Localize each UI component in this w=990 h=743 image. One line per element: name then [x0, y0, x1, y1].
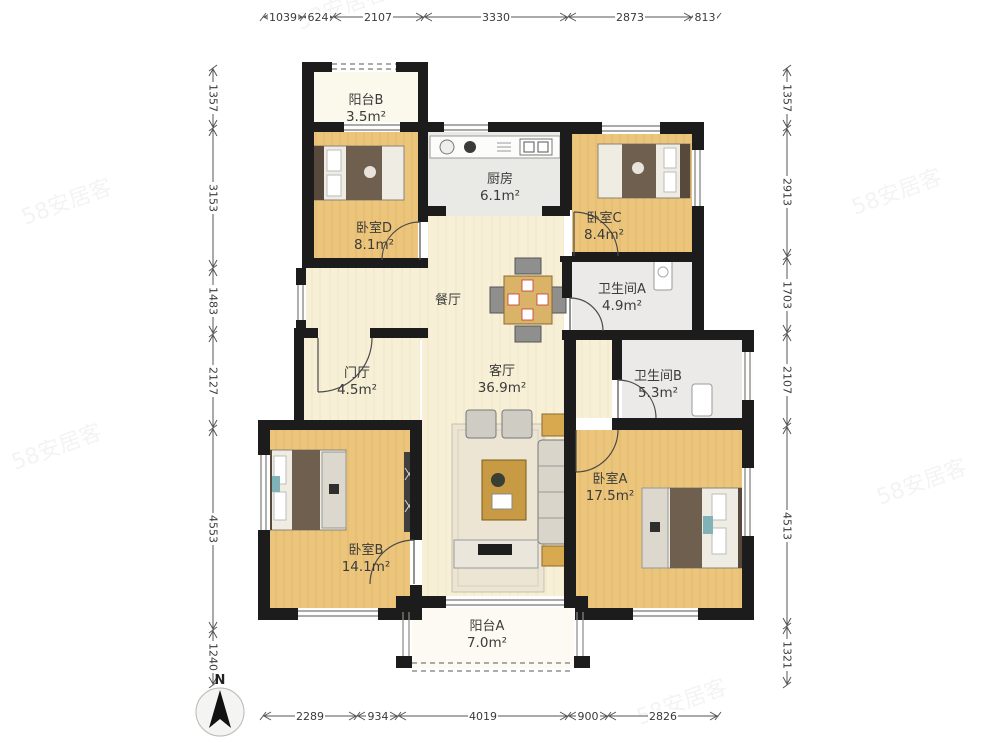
blanket-logo [364, 166, 376, 178]
room-name-balcony-b: 阳台B [349, 93, 384, 108]
room-area-bedroom-b: 14.1m² [342, 559, 391, 575]
floor-plan-canvas: 58安居客 58安居客 58安居客 58安居客 58安居客 58安居客 [0, 0, 990, 743]
washer-bathroom-a [654, 260, 672, 290]
room-name-bedroom-b: 卧室B [349, 542, 384, 558]
stove [520, 139, 552, 155]
bed-blanket [292, 450, 320, 530]
watermark-text: 58安居客 [874, 455, 971, 511]
dim-right-1: 2913 [781, 178, 794, 206]
dim-right-2: 1703 [781, 281, 794, 309]
dimension-bottom: 2289 934 4019 900 2826 [260, 710, 721, 723]
room-area-bedroom-a: 17.5m² [586, 488, 635, 504]
dim-top-5: 813 [695, 11, 716, 24]
dim-right-3: 2107 [781, 366, 794, 394]
dim-top-1: 624 [308, 11, 329, 24]
bed-bedroom-a [642, 488, 746, 568]
bed-blanket [670, 488, 702, 568]
bed-blanket [346, 146, 382, 200]
table-plant [491, 473, 505, 487]
side-table-north [542, 414, 566, 436]
room-floor-hallway [576, 340, 612, 418]
dim-left-3: 2127 [207, 367, 220, 395]
tv [478, 544, 512, 555]
watermark-text: 58安居客 [19, 175, 116, 231]
pillow [327, 175, 341, 196]
pillow [327, 150, 341, 171]
room-name-bathroom-b: 卫生间B [634, 369, 682, 384]
floor-plan-page: 58安居客 58安居客 58安居客 58安居客 58安居客 58安居客 [0, 0, 990, 743]
coffee-table [482, 460, 526, 520]
room-area-bathroom-a: 4.9m² [602, 298, 642, 314]
bathroom-b-fixture [692, 384, 712, 416]
blanket-logo [632, 162, 644, 174]
armchair [466, 410, 496, 438]
room-area-balcony-b: 3.5m² [346, 109, 386, 125]
room-area-bedroom-d: 8.1m² [354, 237, 394, 253]
pillow [712, 528, 726, 554]
dimension-top: 1039 624 2107 3330 2873 813 [260, 11, 721, 24]
room-name-dining: 餐厅 [435, 292, 461, 308]
accent-pillow [703, 516, 713, 534]
room-name-bedroom-a: 卧室A [593, 471, 628, 487]
watermark-text: 58安居客 [9, 420, 106, 476]
dining-chair-north [515, 258, 541, 274]
washer-body [654, 260, 672, 290]
bed-bedroom-d [314, 146, 404, 200]
dim-left-2: 1483 [207, 287, 220, 315]
dim-left-4: 4553 [207, 515, 220, 543]
dim-top-3: 3330 [482, 11, 510, 24]
room-area-bedroom-c: 8.4m² [584, 227, 624, 243]
room-name-living: 客厅 [489, 363, 515, 379]
room-area-balcony-a: 7.0m² [467, 635, 507, 651]
dim-left-1: 3153 [207, 184, 220, 212]
room-area-living: 36.9m² [478, 380, 527, 396]
wardrobe-handle [650, 522, 660, 532]
place-setting [522, 280, 533, 291]
dim-bottom-3: 900 [578, 710, 599, 723]
dim-bottom-1: 934 [368, 710, 389, 723]
room-name-bedroom-c: 卧室C [586, 210, 621, 226]
table-tray [492, 494, 512, 509]
dim-right-0: 1357 [781, 84, 794, 112]
dimension-right: 1357 2913 1703 2107 4513 1321 [780, 65, 794, 688]
pillow [712, 494, 726, 520]
bed-headboard [680, 144, 690, 198]
dim-top-2: 2107 [364, 11, 392, 24]
room-name-bedroom-d: 卧室D [356, 220, 392, 236]
pillow [664, 172, 676, 192]
pillow [274, 492, 286, 520]
dim-bottom-2: 4019 [469, 710, 497, 723]
side-table-south [542, 546, 566, 566]
dim-bottom-4: 2826 [649, 710, 677, 723]
place-setting [537, 294, 548, 305]
bed-headboard [314, 146, 324, 200]
room-area-foyer: 4.5m² [337, 382, 377, 398]
burner [464, 141, 476, 153]
bed-bedroom-c [598, 144, 690, 198]
bed-bedroom-b [264, 450, 346, 530]
pillow [664, 148, 676, 168]
dim-right-4: 4513 [781, 512, 794, 540]
place-setting [522, 309, 533, 320]
kitchen-counter [430, 136, 560, 158]
dim-left-5: 1240 [207, 643, 220, 671]
armchair [502, 410, 532, 438]
dim-top-0: 1039 [269, 11, 297, 24]
room-name-kitchen: 厨房 [487, 171, 513, 187]
room-name-bathroom-a: 卫生间A [598, 282, 646, 297]
compass-north-label: N [215, 673, 226, 688]
place-setting [508, 294, 519, 305]
dimension-left: 1357 3153 1483 2127 4553 1240 [206, 65, 220, 688]
dim-left-0: 1357 [207, 84, 220, 112]
watermark-text: 58安居客 [849, 165, 946, 221]
sink [440, 140, 454, 154]
room-name-balcony-a: 阳台A [470, 619, 505, 634]
dining-chair-south [515, 326, 541, 342]
dim-right-5: 1321 [781, 641, 794, 669]
room-area-kitchen: 6.1m² [480, 188, 520, 204]
accent-pillow [272, 476, 280, 492]
dim-bottom-0: 2289 [296, 710, 324, 723]
compass: N [196, 673, 244, 736]
wardrobe-handle [329, 484, 339, 494]
dim-top-4: 2873 [616, 11, 644, 24]
room-name-foyer: 门厅 [344, 366, 370, 381]
room-area-bathroom-b: 5.3m² [638, 385, 678, 401]
